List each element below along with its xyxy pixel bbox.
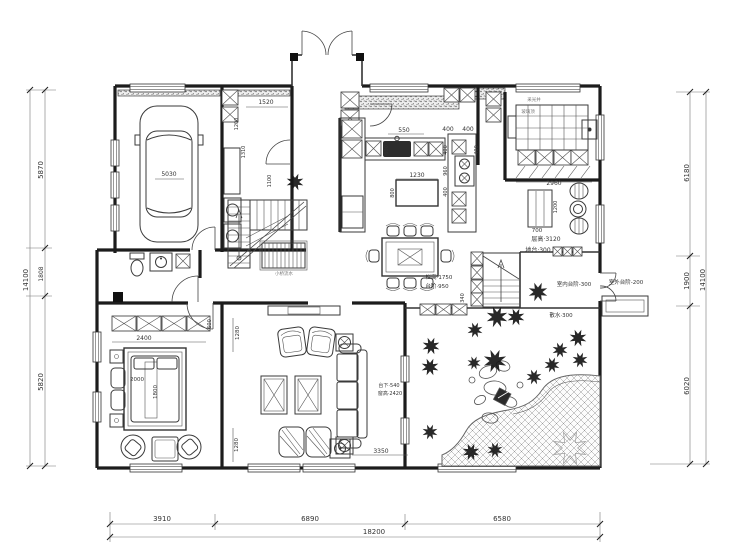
spa-note-2: 玻璃顶 (521, 108, 535, 115)
window (401, 418, 409, 444)
tree (570, 330, 587, 347)
patio-paving (442, 375, 600, 466)
spa-note-1: 采光井 (527, 96, 541, 103)
window (111, 172, 119, 198)
tree (287, 174, 304, 191)
dim-left-total: 14100 (22, 269, 30, 291)
kitchen-dim-400c: 400 (443, 145, 449, 155)
kitchen-dim-400d: 400 (443, 187, 449, 197)
window (401, 356, 409, 382)
pantry-appliances (224, 148, 288, 248)
door-swing (172, 276, 198, 302)
dim-right-6180: 6180 (683, 164, 691, 182)
entry-porch (602, 296, 648, 316)
column-pier (356, 53, 364, 61)
stair-dim-340: 340 (460, 293, 466, 303)
detail-line (555, 166, 564, 178)
tea-dim-1200: 1200 (553, 201, 559, 214)
kitchen-dim-600: 600 (384, 145, 390, 155)
living-dim-1280a: 1280 (235, 326, 241, 340)
door-swing (328, 31, 352, 55)
floor-plan-canvas: 5870 1808 5820 14100 6180 1900 6020 1410… (0, 0, 740, 549)
window (130, 84, 185, 92)
tree (508, 309, 525, 326)
window (248, 464, 300, 472)
window (93, 332, 101, 362)
pantry-dim-1100: 1100 (267, 175, 273, 188)
tree (545, 358, 560, 373)
floor-drain (113, 292, 123, 302)
hatch-band (345, 96, 459, 109)
door-swing (266, 140, 290, 164)
window (516, 84, 580, 92)
tree (423, 425, 438, 440)
floor-plan-drawing: 5870 1808 5820 14100 6180 1900 6020 1410… (0, 0, 740, 549)
spa-dim-2960: 2960 (546, 180, 561, 187)
stair-rail-note: 栏高·1750 (426, 273, 453, 281)
tree (553, 343, 568, 358)
tree (423, 338, 440, 355)
tree (468, 323, 483, 338)
bed-dim-2000: 2000 (130, 377, 144, 383)
dim-right-1900: 1900 (683, 272, 691, 290)
detail-line (568, 166, 577, 178)
dim-left-5820: 5820 (37, 373, 45, 391)
window (93, 392, 101, 422)
kitchen-dim-400a: 400 (442, 126, 454, 133)
kitchen-dim-400b: 400 (462, 126, 474, 133)
note-ceiling-height: 层高·3120 (531, 235, 560, 243)
tree (487, 307, 507, 327)
kitchen-dim-550: 550 (398, 127, 410, 134)
living-dim-3350: 3350 (373, 448, 388, 455)
bedroom-dim-2400: 2400 (136, 335, 151, 342)
kitchen-stove (455, 156, 474, 186)
note-platform: 地台·300 (525, 246, 551, 254)
bridge-note: 小桥流水 (275, 270, 293, 277)
kitchen-dim-800: 800 (390, 188, 396, 198)
living-dim-1280b: 1280 (234, 438, 240, 452)
living-window-note: 窗高·2420 (378, 390, 402, 397)
living-room-furniture (261, 306, 367, 458)
kitchen-dim-1230: 1230 (409, 172, 424, 179)
column-pier (290, 53, 298, 61)
washbasin (150, 253, 172, 271)
detail-line (581, 166, 590, 178)
detail-line (516, 166, 525, 178)
living-sill-note: 台下·540 (378, 382, 399, 389)
bed-dim-1800: 1800 (153, 385, 159, 399)
entry-step-inside: 室内台阶-300 (557, 280, 592, 288)
dim-bottom-6580: 6580 (493, 515, 511, 523)
window (303, 464, 355, 472)
pantry-dim-1310: 1310 (241, 146, 247, 159)
dim-bottom-3910: 3910 (153, 515, 171, 523)
tree (529, 283, 547, 301)
kitchen-island (396, 180, 438, 206)
tv-console (268, 306, 340, 315)
dim-right-6020: 6020 (683, 377, 691, 395)
tea-dim-700: 700 (532, 228, 543, 234)
tree (468, 357, 481, 370)
tree (573, 353, 588, 368)
window (111, 205, 119, 231)
pantry-dim-1520: 1520 (258, 99, 273, 106)
window (370, 84, 428, 92)
tree (422, 359, 439, 376)
bedroom-dim-600: 600 (207, 319, 213, 329)
note-apron: 散水·300 (549, 311, 573, 319)
window (130, 464, 182, 472)
bathroom-fixtures (113, 253, 172, 302)
dim-left-5870: 5870 (37, 161, 45, 179)
detail-line (529, 166, 538, 178)
toilet (130, 253, 144, 259)
entry-step-outside: 室外台阶-200 (609, 278, 644, 286)
bridge (262, 243, 305, 268)
bedroom-furniture (110, 348, 201, 461)
dim-right-total: 14100 (699, 269, 707, 291)
window (596, 205, 604, 243)
dim-bottom-total: 18200 (363, 528, 385, 536)
stair-step-note: 台阶·950 (425, 282, 449, 290)
door-swing (234, 206, 306, 268)
pantry-dim-1200: 1200 (234, 118, 240, 131)
dim-left-1808: 1808 (38, 266, 45, 281)
door-swing (192, 227, 215, 250)
garage-car-dim: 5030 (161, 171, 176, 178)
detail-line (542, 166, 551, 178)
window (111, 140, 119, 166)
door-swing (302, 31, 326, 55)
kitchen-dim-400e: 400 (474, 145, 480, 155)
kitchen-dim-960: 960 (443, 166, 449, 176)
dim-bottom-6890: 6890 (301, 515, 319, 523)
tree (527, 370, 542, 385)
